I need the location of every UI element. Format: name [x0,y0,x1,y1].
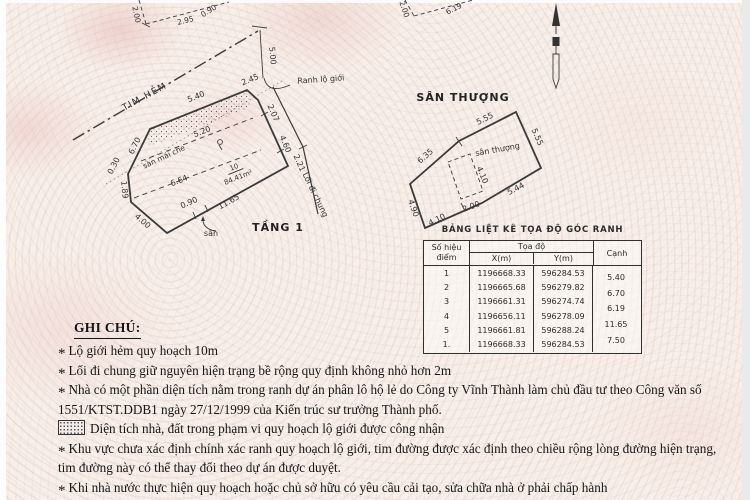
floor1-title: TẦNG 1 [252,220,304,234]
dim-label: 6.64 [169,173,189,188]
fragment-plan-left: 2.00 2.95 0.90 [130,0,229,27]
table-cell: 3 [424,297,469,306]
table-cell: 5.40 [593,273,639,282]
hatched-area-swatch-icon [58,420,85,435]
dim-label: 4.90 [406,198,420,218]
dim-label: 6.70 [127,136,143,156]
lot-number: 10 [228,162,239,173]
dim-label: 6.19 [444,1,463,17]
table-cell: 1196661.31 [470,297,533,306]
alley-centerline-label: TIM HẺM [119,79,169,114]
dim-label: 2.00 [130,5,142,23]
note-text: Nhà có một phần diện tích nằm trong ranh… [58,382,702,417]
col-header-point-line1: Số hiệu [432,243,462,253]
notes-section: GHI CHÚ: *Lộ giới hẻm quy hoạch 10m *Lối… [58,318,722,497]
table-cell: 6.70 [593,289,639,298]
section-marker-icon [218,140,223,145]
dim-label: 11.65 [217,192,241,211]
floor1-plan: TIM HẺM 5.00 Ranh lộ giới [73,26,345,238]
note-item: *Lộ giới hẻm quy hoạch 10m [58,341,722,361]
dim-label: 1.89 [119,180,130,199]
dim-label: 6.35 [416,147,435,165]
lot-area-fraction: 10 84.41m² [219,158,254,187]
dim-label: 2.00 [461,199,481,214]
table-cell: 1 [424,269,469,278]
north-arrow-icon [552,3,560,88]
table-cell: 596279.82 [534,283,592,292]
scanned-survey-document: 2.00 2.95 0.90 2.00 6.19 TIM HẺM [0,0,750,500]
yard-label: sân [204,229,218,238]
dim-label: 2.00 [398,0,412,19]
note-text: Lộ giới hẻm quy hoạch 10m [69,343,218,358]
col-header-point-line2: điểm [436,253,456,263]
table-cell: 6.19 [593,304,639,313]
covered-floor-label: sàn mái che [141,143,186,171]
note-text: Lối đi chung giữ nguyên hiện trạng bề rộ… [69,363,452,378]
dim-label: 2.45 [240,72,260,87]
common-path-label: Lối đi chung [301,171,331,219]
dim-label: 0.30 [106,156,122,176]
dim-label: 2.95 [176,14,195,27]
note-item: Diện tích nhà, đất trong phạm vi quy hoạ… [58,419,722,439]
note-text: Diện tích nhà, đất trong phạm vi quy hoạ… [90,421,444,436]
roof-inner-label: sân thượng [475,141,521,158]
coordinate-table-title: BẢNG LIỆT KÊ TỌA ĐỘ GÓC RANH [423,225,642,235]
note-item: *Lối đi chung giữ nguyên hiện trạng bề r… [58,361,722,381]
dim-label: 0.90 [179,195,199,210]
table-cell: 596284.53 [534,269,592,278]
note-text: Khi nhà nước thực hiện quy hoạch hoặc ch… [69,480,608,495]
dim-label: 5.40 [186,89,206,104]
col-header-point: Số hiệu điểm [424,241,470,265]
road-boundary-label: Ranh lộ giới [297,72,345,85]
dim-label: 4.10 [475,165,490,185]
lot-area: 84.41m² [223,168,254,187]
dim-label: 4.00 [133,212,152,230]
note-text: Khu vực chưa xác định chính xác ranh quy… [58,441,716,476]
scan-edge-right [742,0,750,500]
note-item: *Nhà có một phần diện tích nằm trong ran… [58,380,722,419]
note-item: *Khi nhà nước thực hiện quy hoạch hoặc c… [58,478,722,498]
roof-plan: SÂN THƯỢNG 5.55 5.55 6.35 4.90 4.10 5.44… [406,91,545,228]
dim-label: 5.55 [530,127,545,147]
col-header-coords: Tọa độ X(m) Y(m) [470,241,594,265]
table-cell: 1196668.33 [470,269,533,278]
table-cell: 596274.74 [534,297,592,306]
col-header-y: Y(m) [534,253,593,264]
table-cell: 2 [424,283,469,292]
roof-title: SÂN THƯỢNG [416,91,509,104]
fragment-plan-right: 2.00 6.19 [398,0,473,19]
notes-heading: GHI CHÚ: [74,318,141,339]
dim-label: 5.44 [506,181,526,197]
note-item: *Khu vực chưa xác định chính xác ranh qu… [58,439,722,478]
col-header-edge: Cạnh [594,241,640,265]
col-header-coords-label: Tọa độ [470,241,593,253]
table-cell: 1196665.68 [470,283,533,292]
setback-dim: 5.00 [267,46,278,65]
dim-label: 0.90 [199,3,218,20]
roof-void-outline [448,154,483,199]
table-header: Số hiệu điểm Tọa độ X(m) Y(m) Cạnh [424,241,641,265]
col-header-x: X(m) [470,253,534,264]
